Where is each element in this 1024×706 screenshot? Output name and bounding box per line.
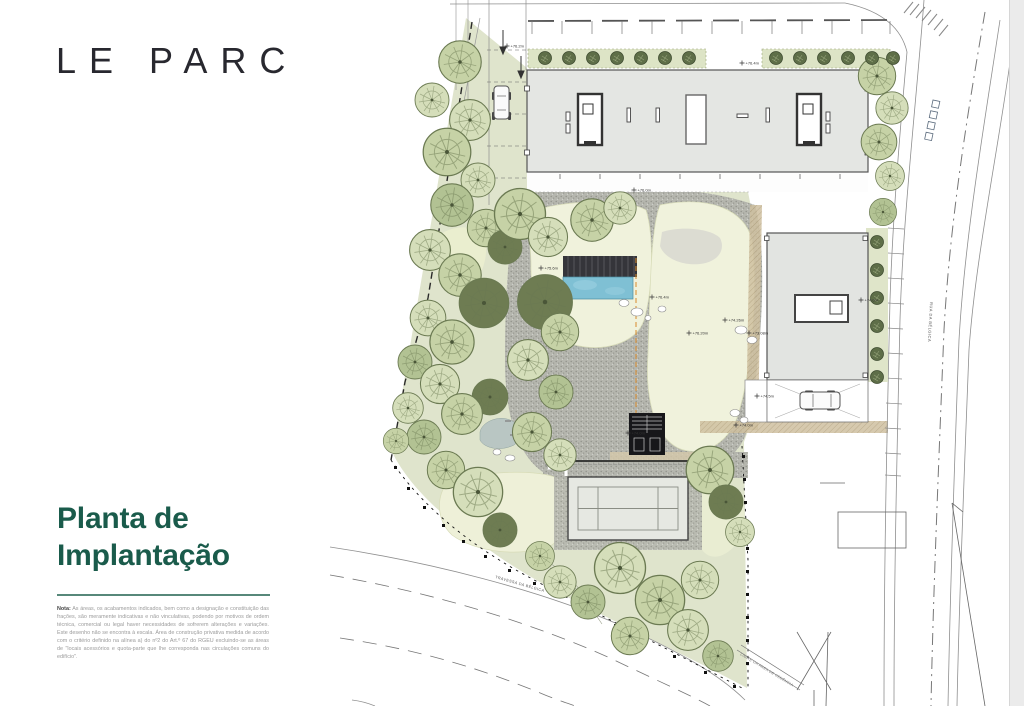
- svg-text:+74.0m: +74.0m: [632, 430, 646, 435]
- stair-core: [578, 94, 602, 145]
- skylight: [795, 295, 848, 322]
- skylight: [686, 95, 706, 144]
- page: +76.2m +76.4m +76.0m +75.6m +76.4m +76.2…: [0, 0, 1024, 706]
- svg-text:+76.4m: +76.4m: [746, 60, 760, 65]
- svg-text:+74.5m: +74.5m: [761, 393, 775, 398]
- svg-text:+74.0m: +74.0m: [740, 422, 754, 427]
- page-title: Planta de Implantação: [57, 500, 230, 574]
- svg-text:+73.08m: +73.08m: [753, 330, 769, 335]
- neighbour-buildings: [797, 483, 985, 706]
- parking-stalls-top: [532, 21, 890, 34]
- entrance-car: [492, 86, 511, 120]
- svg-text:+75.6m: +75.6m: [545, 265, 559, 270]
- svg-text:+76.4m: +76.4m: [656, 294, 670, 299]
- svg-text:+76.0m: +76.0m: [638, 187, 652, 192]
- elevation-marker: +76.2m: [505, 43, 525, 48]
- building-apron: [527, 172, 868, 192]
- elevation-marker: +76.4m: [740, 60, 760, 65]
- svg-text:+76.20m: +76.20m: [693, 330, 709, 335]
- screenshot-edge-band: [1009, 0, 1024, 706]
- tennis-court: [548, 465, 702, 550]
- svg-text:+74.26m: +74.26m: [729, 317, 745, 322]
- tactile-paving: [925, 100, 940, 141]
- site-plan: +76.2m +76.4m +76.0m +75.6m +76.4m +76.2…: [0, 0, 1024, 706]
- disclaimer-note: Nota: As áreas, os acabamentos indicados…: [57, 605, 269, 661]
- brand-logo: LE PARC: [56, 40, 298, 82]
- page-title-line1: Planta de: [57, 500, 230, 537]
- note-text: As áreas, os acabamentos indicados, bem …: [57, 606, 269, 660]
- svg-text:+76.2m: +76.2m: [511, 43, 525, 48]
- stair-core: [797, 94, 821, 145]
- street-label-rua: RUA DA BÉLGICA: [927, 302, 934, 342]
- cession-limit-label: LIMITE DA ÁREA DE CEDÊNCIA: [739, 652, 794, 688]
- title-divider: [57, 594, 270, 596]
- crosswalk: [904, 2, 948, 36]
- tan-path-horizontal: [700, 421, 888, 433]
- page-title-line2: Implantação: [57, 537, 230, 574]
- car: [800, 391, 840, 411]
- pool: [563, 277, 633, 299]
- svg-text:+74.6m: +74.6m: [865, 297, 879, 302]
- note-label: Nota:: [57, 606, 71, 612]
- building-a: [525, 49, 891, 179]
